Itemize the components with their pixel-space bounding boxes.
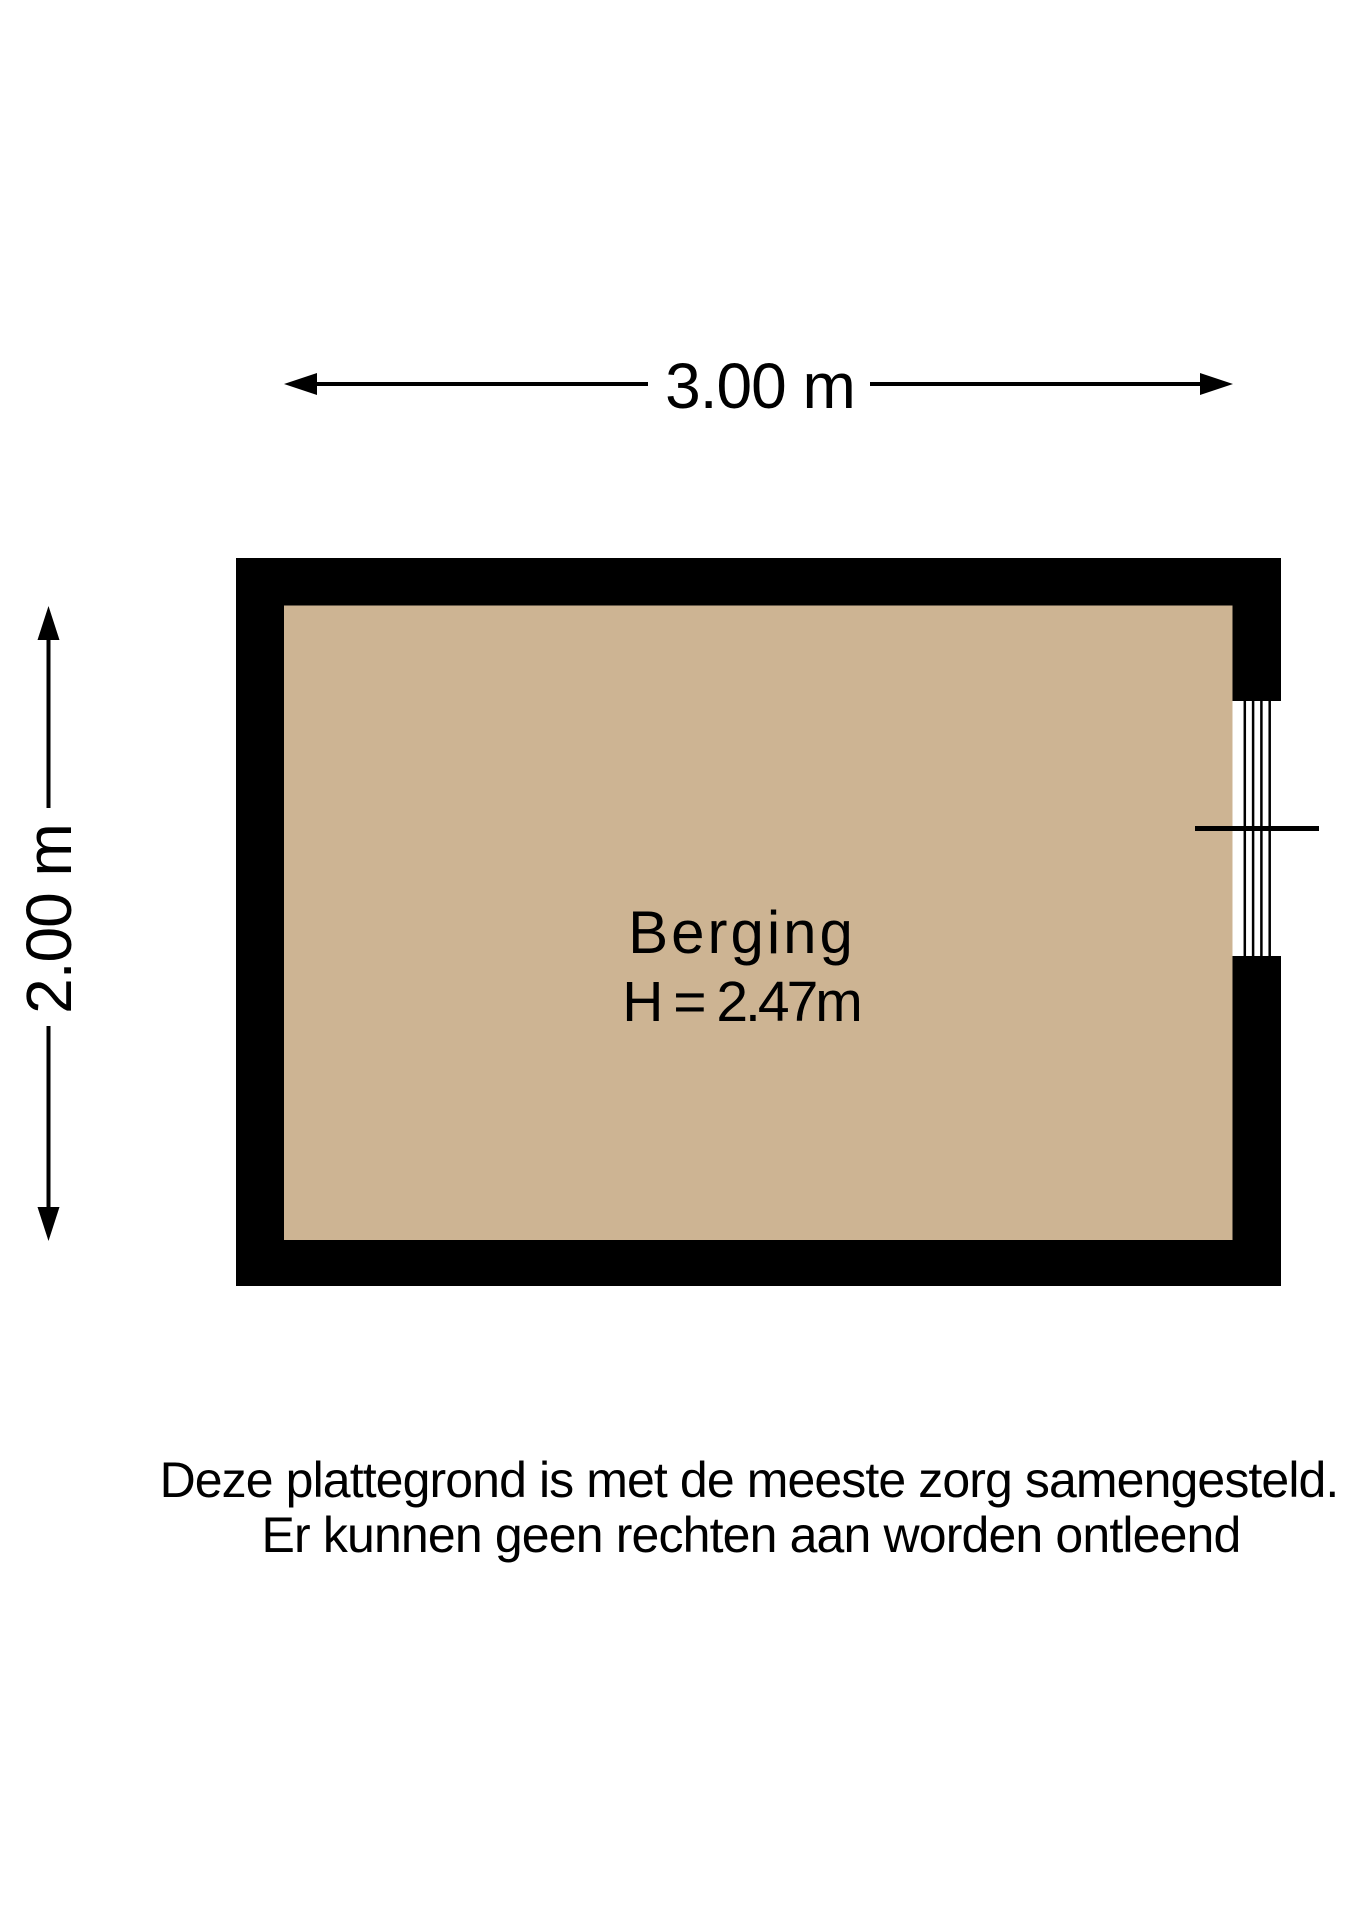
svg-text:3.00 m: 3.00 m — [665, 350, 855, 422]
svg-text:Berging: Berging — [628, 899, 856, 966]
svg-text:Deze plattegrond is met de mee: Deze plattegrond is met de meeste zorg s… — [160, 1452, 1339, 1508]
svg-text:2.00 m: 2.00 m — [13, 824, 85, 1014]
svg-text:H = 2.47m: H = 2.47m — [622, 970, 860, 1034]
svg-text:Er kunnen geen rechten aan wor: Er kunnen geen rechten aan worden ontlee… — [262, 1507, 1241, 1563]
